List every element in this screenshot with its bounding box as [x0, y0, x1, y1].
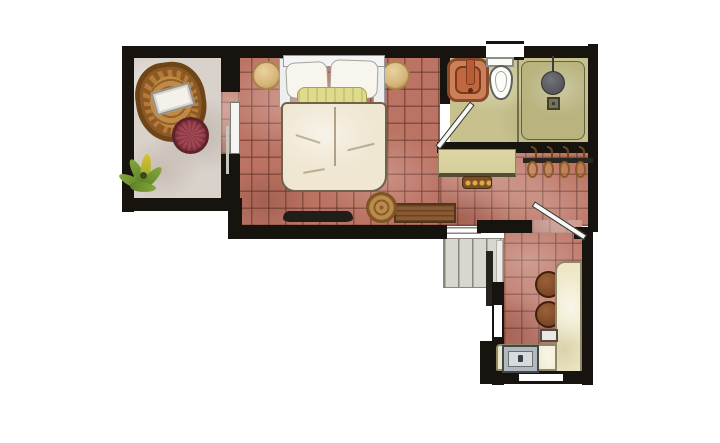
hanger: [527, 146, 540, 178]
duvet-crease: [303, 168, 325, 174]
plant-center: [140, 172, 147, 179]
duvet: [281, 102, 387, 192]
tv-console: [283, 211, 353, 222]
stair-treads: [443, 238, 504, 288]
sliding-door: [230, 102, 240, 154]
bedside-stool-left: [252, 61, 281, 90]
duvet-crease: [295, 134, 320, 144]
sink-faucet: [466, 59, 475, 85]
bathroom-divider-line: [517, 60, 519, 142]
shower-drain: [547, 97, 560, 110]
right-wall-upper: [588, 44, 598, 232]
kitchenette-left-wall-upper: [492, 282, 504, 307]
right-wall-lower: [582, 227, 593, 385]
hanger: [543, 146, 556, 178]
duvet-crease: [347, 143, 375, 152]
hanger: [559, 146, 572, 178]
ottoman: [172, 117, 209, 154]
sink-drain-dot: [468, 88, 473, 93]
sliding-door-track: [226, 126, 229, 174]
bedroom-bottom-wall: [228, 225, 447, 239]
potted-plant: [122, 152, 166, 204]
vessel-sink: [447, 58, 489, 102]
bedside-stool-right: [381, 61, 410, 90]
wooden-bench: [394, 203, 456, 223]
hanger: [575, 146, 588, 178]
counter-shelf-box: [540, 329, 558, 342]
lounge-divider-wall-top: [221, 46, 240, 92]
shower-head: [541, 71, 565, 95]
kitchen-counter-right: [555, 261, 582, 371]
vanity-desk: [438, 149, 516, 177]
hallway-wall: [477, 220, 532, 233]
floor-plan-canvas: [0, 0, 720, 443]
spiral-pouf: [366, 192, 397, 223]
desk-stool: [462, 176, 492, 189]
kitchen-sink-unit: [502, 345, 539, 373]
kitchenette-side-window: [492, 305, 504, 337]
kitchen-sink-basin: [508, 351, 533, 367]
